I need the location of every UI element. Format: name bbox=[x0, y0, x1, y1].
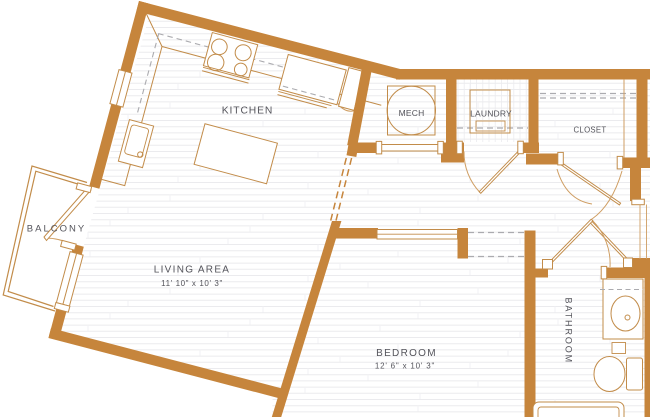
svg-text:CLOSET: CLOSET bbox=[574, 125, 607, 134]
svg-text:BATHROOM: BATHROOM bbox=[564, 298, 574, 365]
svg-text:LAUNDRY: LAUNDRY bbox=[470, 109, 512, 119]
svg-text:KITCHEN: KITCHEN bbox=[222, 106, 274, 117]
svg-text:MECH: MECH bbox=[399, 108, 425, 118]
svg-text:BALCONY: BALCONY bbox=[27, 224, 86, 235]
svg-text:LIVING AREA: LIVING AREA bbox=[154, 265, 231, 276]
svg-text:12' 6" x 10' 3": 12' 6" x 10' 3" bbox=[375, 362, 435, 371]
svg-text:BEDROOM: BEDROOM bbox=[376, 348, 437, 359]
svg-text:11' 10" x 10' 3": 11' 10" x 10' 3" bbox=[161, 279, 223, 288]
